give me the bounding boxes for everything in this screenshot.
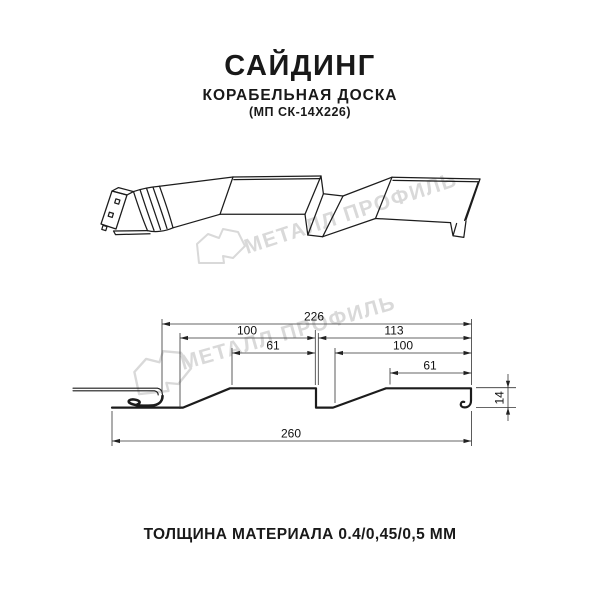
technical-drawing: МЕТАЛЛ ПРОФИЛЬ МЕТАЛЛ ПРОФИЛЬ bbox=[0, 0, 600, 600]
dim-label-14: 14 bbox=[493, 391, 507, 405]
dim-100-right: 100 bbox=[335, 339, 472, 356]
brand-watermark-text: МЕТАЛЛ ПРОФИЛЬ bbox=[178, 291, 398, 375]
dim-61-right: 61 bbox=[390, 359, 472, 376]
dim-label-260: 260 bbox=[281, 427, 301, 441]
watermark-top: МЕТАЛЛ ПРОФИЛЬ bbox=[197, 168, 460, 263]
dim-14: 14 bbox=[493, 374, 511, 421]
dim-label-113: 113 bbox=[384, 324, 403, 338]
dim-label-100-right: 100 bbox=[393, 339, 413, 353]
lock-seam bbox=[129, 396, 163, 406]
nail-strip bbox=[101, 191, 127, 229]
nail-hole bbox=[102, 225, 107, 230]
edge-foot bbox=[451, 221, 467, 238]
brand-watermark-text: МЕТАЛЛ ПРОФИЛЬ bbox=[241, 168, 460, 259]
dim-label-61-left: 61 bbox=[266, 339, 280, 353]
nail-hole bbox=[108, 212, 113, 217]
dim-226: 226 bbox=[162, 310, 472, 327]
material-thickness-note: ТОЛЩИНА МАТЕРИАЛА 0.4/0,45/0,5 ММ bbox=[0, 526, 600, 544]
dim-label-61-right: 61 bbox=[423, 359, 437, 373]
page: САЙДИНГ КОРАБЕЛЬНАЯ ДОСКА (МП СК-14Х226)… bbox=[0, 0, 600, 600]
brand-logo-icon bbox=[197, 229, 245, 263]
dim-label-226: 226 bbox=[304, 310, 324, 324]
nail-hole bbox=[115, 199, 120, 204]
dim-label-100-left: 100 bbox=[237, 324, 257, 338]
dim-260: 260 bbox=[112, 427, 472, 444]
lock-hem-folds bbox=[112, 186, 173, 234]
